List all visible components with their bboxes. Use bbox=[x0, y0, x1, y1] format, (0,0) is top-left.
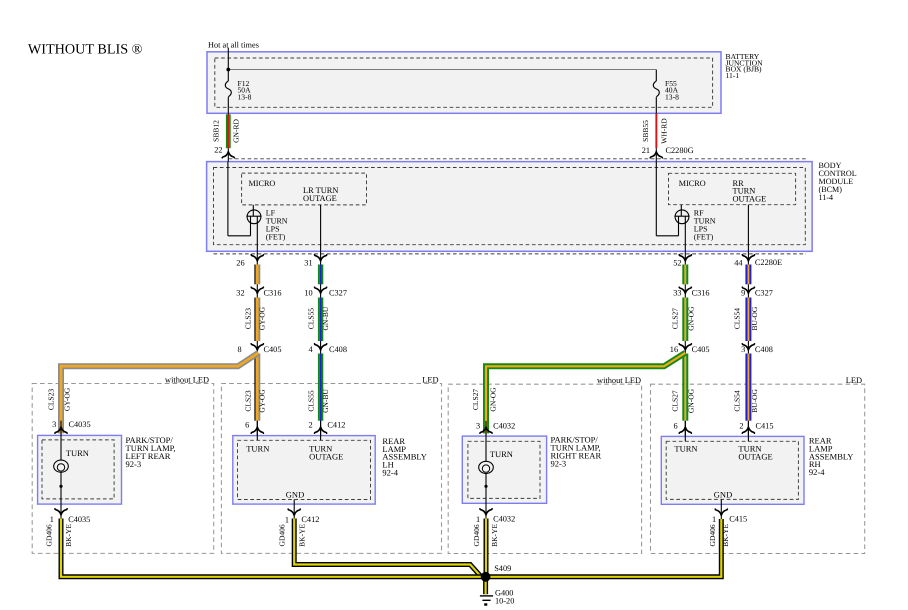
svg-text:11-4: 11-4 bbox=[819, 193, 834, 202]
svg-text:C405: C405 bbox=[692, 345, 710, 354]
svg-text:32: 32 bbox=[236, 289, 244, 298]
svg-text:C412: C412 bbox=[327, 420, 345, 429]
svg-text:GND: GND bbox=[714, 490, 732, 500]
svg-text:22: 22 bbox=[214, 146, 222, 155]
svg-text:GD406: GD406 bbox=[277, 524, 286, 546]
svg-text:CLS54: CLS54 bbox=[732, 308, 741, 330]
svg-text:1: 1 bbox=[50, 515, 54, 524]
svg-text:OUTAGE: OUTAGE bbox=[309, 451, 343, 461]
svg-text:OUTAGE: OUTAGE bbox=[733, 195, 767, 204]
svg-text:GND: GND bbox=[286, 490, 304, 500]
svg-text:Hot at all times: Hot at all times bbox=[208, 40, 259, 49]
svg-text:BK-YE: BK-YE bbox=[298, 524, 307, 547]
svg-text:LED: LED bbox=[846, 376, 862, 385]
svg-text:(FET): (FET) bbox=[694, 233, 714, 242]
svg-text:C415: C415 bbox=[729, 515, 747, 524]
svg-text:6: 6 bbox=[674, 421, 678, 430]
svg-text:C327: C327 bbox=[329, 289, 347, 298]
svg-text:GD406: GD406 bbox=[44, 524, 53, 546]
svg-text:GN-RD: GN-RD bbox=[231, 119, 240, 143]
svg-text:C4032: C4032 bbox=[493, 515, 515, 524]
svg-text:C2280E: C2280E bbox=[755, 258, 782, 267]
svg-text:CLS27: CLS27 bbox=[471, 389, 480, 411]
svg-text:C408: C408 bbox=[329, 345, 347, 354]
svg-text:92-4: 92-4 bbox=[809, 467, 825, 477]
svg-text:CLS23: CLS23 bbox=[243, 308, 252, 330]
svg-text:C2280G: C2280G bbox=[666, 146, 694, 155]
svg-text:BK-YE: BK-YE bbox=[490, 524, 499, 547]
svg-text:92-3: 92-3 bbox=[551, 459, 567, 469]
svg-text:C316: C316 bbox=[264, 289, 282, 298]
svg-text:GN-OG: GN-OG bbox=[687, 306, 696, 331]
svg-text:GD406: GD406 bbox=[708, 524, 717, 546]
svg-text:52: 52 bbox=[673, 258, 681, 267]
svg-text:31: 31 bbox=[304, 258, 312, 267]
svg-text:(FET): (FET) bbox=[266, 233, 286, 242]
svg-text:MICRO: MICRO bbox=[249, 179, 276, 188]
svg-text:10-20: 10-20 bbox=[495, 597, 514, 606]
svg-text:GY-OG: GY-OG bbox=[258, 389, 267, 413]
svg-text:LED: LED bbox=[422, 376, 438, 385]
svg-text:2: 2 bbox=[739, 422, 743, 431]
svg-text:S409: S409 bbox=[494, 564, 511, 573]
svg-text:13-8: 13-8 bbox=[238, 92, 252, 101]
svg-text:without LED: without LED bbox=[597, 376, 641, 385]
svg-text:BK-YE: BK-YE bbox=[721, 524, 730, 547]
svg-text:10: 10 bbox=[304, 289, 312, 298]
svg-text:without LED: without LED bbox=[165, 376, 209, 385]
svg-text:2: 2 bbox=[308, 420, 312, 429]
svg-text:GY-OG: GY-OG bbox=[258, 306, 267, 330]
svg-text:C4035: C4035 bbox=[68, 515, 90, 524]
svg-text:CLS27: CLS27 bbox=[670, 390, 679, 412]
svg-text:16: 16 bbox=[670, 345, 678, 354]
svg-text:TURN: TURN bbox=[246, 443, 269, 453]
svg-text:C4035: C4035 bbox=[69, 420, 91, 429]
svg-text:TURN: TURN bbox=[490, 449, 513, 459]
svg-text:OUTAGE: OUTAGE bbox=[738, 452, 772, 462]
svg-text:8: 8 bbox=[237, 345, 241, 354]
svg-text:26: 26 bbox=[236, 258, 244, 267]
svg-text:CLS23: CLS23 bbox=[47, 389, 56, 411]
svg-text:3: 3 bbox=[741, 345, 745, 354]
svg-text:9: 9 bbox=[741, 289, 745, 298]
svg-text:33: 33 bbox=[673, 289, 681, 298]
svg-text:C405: C405 bbox=[264, 345, 282, 354]
svg-text:BU-OG: BU-OG bbox=[750, 306, 759, 330]
svg-text:BK-YE: BK-YE bbox=[64, 524, 73, 547]
svg-text:GN-BU: GN-BU bbox=[321, 306, 330, 330]
svg-text:1: 1 bbox=[285, 515, 289, 524]
svg-text:MICRO: MICRO bbox=[679, 179, 706, 188]
svg-text:21: 21 bbox=[642, 146, 650, 155]
svg-text:CLS55: CLS55 bbox=[307, 308, 316, 330]
svg-text:44: 44 bbox=[734, 258, 743, 267]
svg-text:C415: C415 bbox=[756, 421, 774, 430]
svg-text:TURN: TURN bbox=[674, 444, 697, 454]
svg-text:C4032: C4032 bbox=[493, 421, 515, 430]
svg-text:GD406: GD406 bbox=[472, 524, 481, 546]
svg-text:6: 6 bbox=[245, 421, 249, 430]
svg-text:TURN: TURN bbox=[66, 448, 89, 458]
svg-text:C412: C412 bbox=[301, 515, 319, 524]
svg-text:CLS27: CLS27 bbox=[670, 308, 679, 330]
svg-text:GN-OG: GN-OG bbox=[687, 388, 696, 413]
svg-text:OUTAGE: OUTAGE bbox=[303, 194, 337, 203]
svg-text:C316: C316 bbox=[692, 289, 710, 298]
svg-text:BU-OG: BU-OG bbox=[750, 389, 759, 413]
svg-text:3: 3 bbox=[476, 422, 480, 431]
svg-text:C327: C327 bbox=[755, 289, 773, 298]
svg-text:92-3: 92-3 bbox=[126, 459, 142, 469]
svg-text:3: 3 bbox=[52, 420, 56, 429]
svg-text:GN-BU: GN-BU bbox=[321, 389, 330, 413]
svg-text:GN-OG: GN-OG bbox=[489, 387, 498, 412]
svg-text:GY-OG: GY-OG bbox=[63, 387, 72, 411]
svg-text:11-1: 11-1 bbox=[726, 71, 740, 80]
svg-text:SBB55: SBB55 bbox=[641, 120, 650, 142]
svg-text:1: 1 bbox=[712, 515, 716, 524]
svg-text:C408: C408 bbox=[755, 345, 773, 354]
svg-text:SBB12: SBB12 bbox=[212, 120, 221, 142]
svg-text:WH-RD: WH-RD bbox=[659, 118, 668, 144]
svg-text:CLS55: CLS55 bbox=[307, 390, 316, 412]
svg-text:CLS54: CLS54 bbox=[732, 390, 741, 412]
svg-text:1: 1 bbox=[476, 515, 480, 524]
svg-text:WITHOUT BLIS ®: WITHOUT BLIS ® bbox=[28, 41, 143, 57]
svg-text:13-8: 13-8 bbox=[665, 92, 679, 101]
svg-text:92-4: 92-4 bbox=[382, 468, 398, 478]
svg-text:CLS23: CLS23 bbox=[243, 390, 252, 412]
